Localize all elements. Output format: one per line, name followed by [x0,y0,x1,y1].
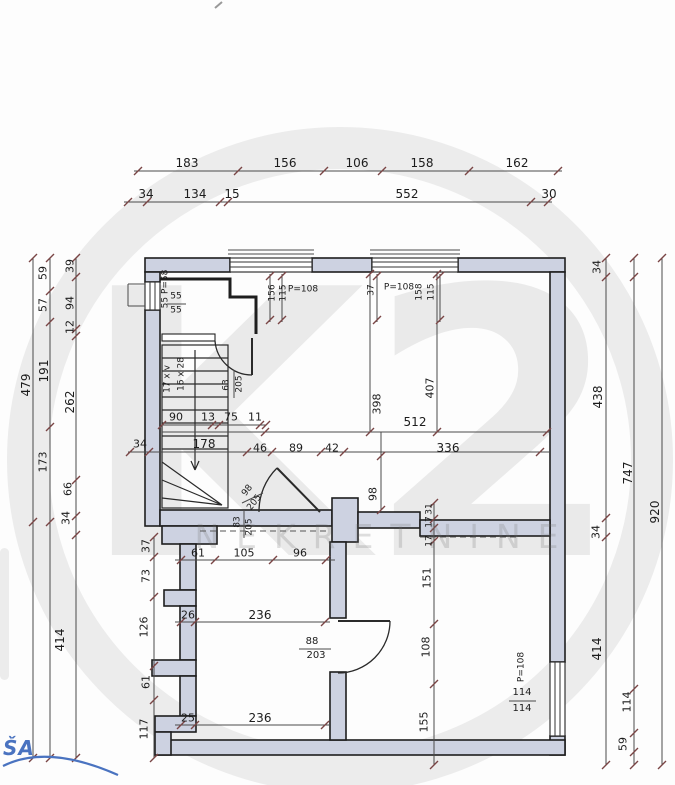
dim-label: 55 [170,307,181,316]
dim-label: 46 [253,443,267,454]
dim-label: 512 [404,416,427,428]
dim-label: 134 [184,188,207,200]
dim-label: 88 [306,637,319,647]
dim-label: P=108 [288,286,318,295]
dim-label: 57 [38,298,49,312]
dim-label: 262 [64,391,76,414]
dim-label: 747 [622,462,634,485]
dim-label: 94 [65,296,76,310]
dim-label: 151 [422,568,433,589]
dim-label: 155 [419,712,430,733]
dim-label: 98 [368,487,379,501]
dim-label: 126 [139,617,150,638]
signature-text: ŠA [3,736,35,760]
dim-label: 236 [249,609,272,621]
dim-label: 205 [246,518,255,535]
dim-label: 34 [133,439,147,450]
dim-label: 59 [38,266,49,280]
dim-label: 61 [191,548,205,559]
dim-label: 414 [591,638,603,661]
dim-label: 34 [592,260,603,274]
dim-label: 89 [289,443,303,454]
dim-label: 83 [234,516,243,527]
dim-label: 336 [437,442,460,454]
dim-label: 37 [141,539,152,553]
dim-label: 17 [426,516,435,527]
dim-label: 42 [325,443,339,454]
dim-label: 66 [63,482,74,496]
dim-label: P=108 [518,652,527,682]
dim-label: 105 [234,548,255,559]
dim-label: 59 [618,737,629,751]
dim-label: 479 [20,374,32,397]
dim-label: 236 [249,712,272,724]
dim-label: 183 [176,157,199,169]
dim-label: 73 [141,569,152,583]
dim-label: 34 [591,525,602,539]
dim-label: 37 [368,284,377,295]
dim-label: 31 [426,503,435,514]
dim-label: 414 [54,629,66,652]
dim-label: 158 [411,157,434,169]
dim-label: 17 x v [164,365,173,393]
dim-label: 398 [372,394,383,415]
dim-label: 156 [269,284,278,301]
scan-stray-mark [215,2,222,8]
dim-label: 117 [139,719,150,740]
dim-label: P=108 [384,284,414,293]
dim-label: 34 [61,511,72,525]
dim-label: 438 [592,386,604,409]
dim-label: 173 [38,452,49,473]
dim-label: 16 x 28 [178,357,187,391]
dim-label: 63 [223,379,232,390]
plan-drawing: K2 [0,0,675,785]
dim-label: 115 [428,283,437,300]
dim-label: 158 [416,283,425,300]
dim-label: 407 [425,378,436,399]
dim-label: 920 [649,501,661,524]
dim-label: 12 [65,320,76,334]
dim-label: 25 [181,713,195,724]
dim-label: 106 [346,157,369,169]
dim-label: 108 [421,637,432,658]
dim-label: 55 [170,293,181,302]
dim-label: 61 [141,675,152,689]
dim-label: 191 [38,360,50,383]
dim-label: 39 [65,259,76,273]
dim-label: 162 [506,157,529,169]
dim-label: 55 P=58 [162,270,171,309]
dim-label: 114 [622,692,633,713]
dim-label: 13 [201,412,215,423]
dim-label: 156 [274,157,297,169]
dim-label: 205 [236,375,245,392]
dim-label: 96 [293,548,307,559]
dim-label: 178 [193,438,216,450]
floor-plan-page: K2 [0,0,675,785]
dim-label: 26 [181,610,195,621]
dim-label: 15 [224,188,239,200]
dim-label: 203 [306,651,325,661]
dim-label: 114 [512,688,531,698]
dim-label: 30 [541,188,556,200]
dim-label: 75 [224,412,238,423]
dim-label: 552 [396,188,419,200]
dim-label: 114 [512,704,531,714]
dim-label: 17 [426,535,435,546]
dim-label: 34 [138,188,153,200]
dim-label: 90 [169,412,183,423]
dim-label: 11 [248,412,262,423]
